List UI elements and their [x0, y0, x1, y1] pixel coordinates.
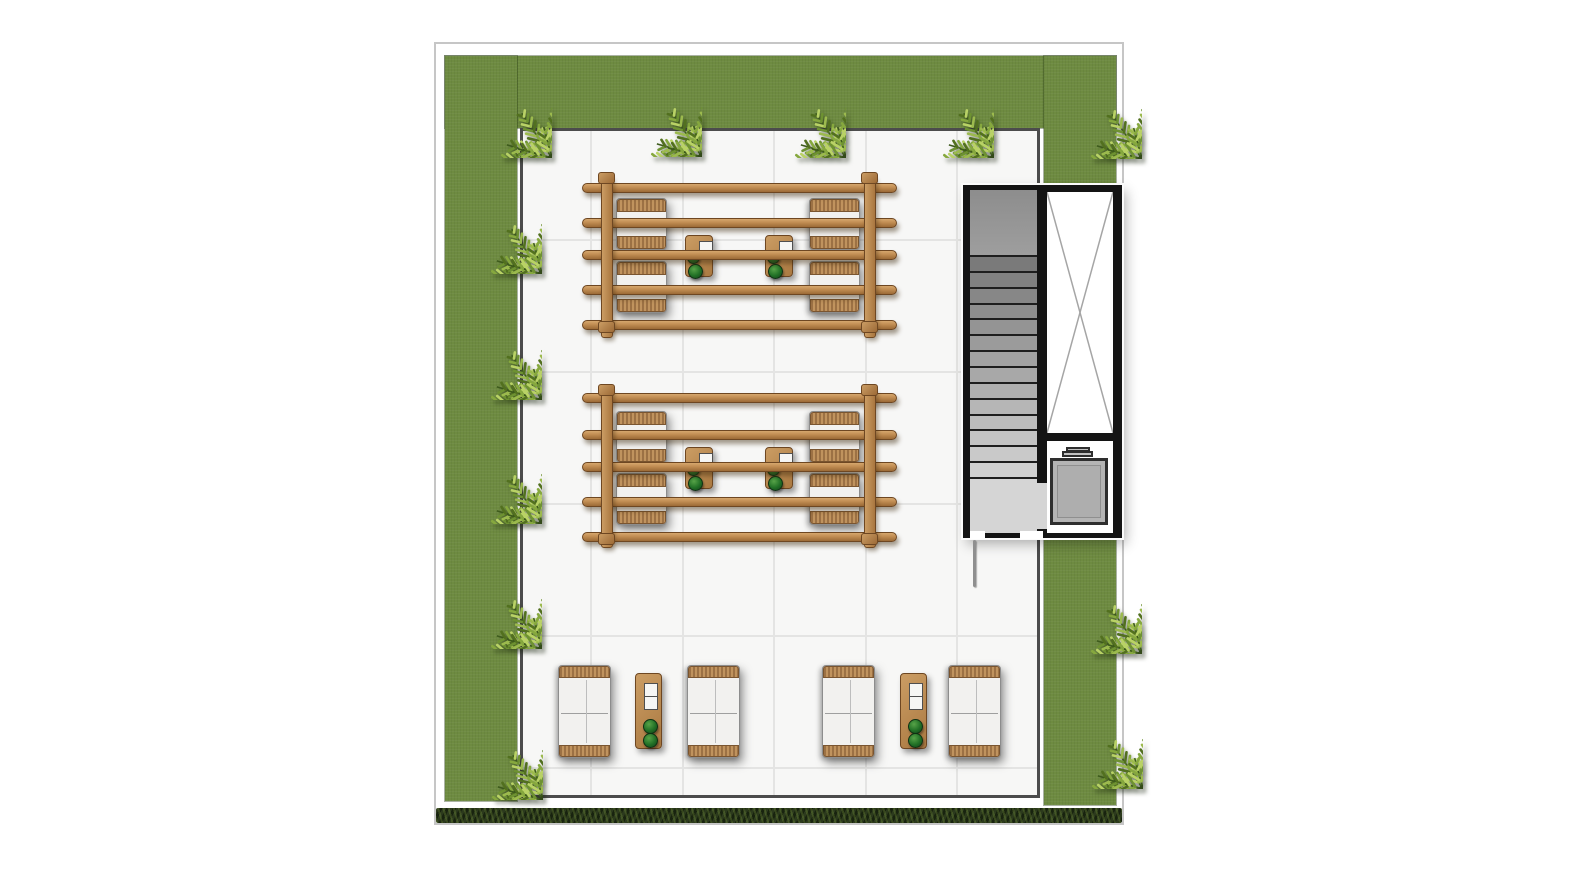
sofa-seam — [561, 713, 608, 714]
chair-wicker-end — [810, 262, 859, 275]
chair-wicker-end — [617, 474, 666, 487]
chair-wicker-end — [617, 199, 666, 212]
pergola-post-cap — [861, 172, 878, 184]
pergola-beam — [582, 285, 897, 295]
stair-tread — [970, 350, 1037, 366]
stair-tread — [970, 255, 1037, 271]
sofa-wicker-end — [949, 666, 1000, 678]
pergola-post-cap — [598, 384, 615, 396]
tank-lid — [1062, 451, 1093, 457]
stair-tread — [970, 382, 1037, 398]
pergola-post-cap — [861, 533, 878, 545]
pergola-beam — [582, 462, 897, 472]
chair-wicker-end — [617, 236, 666, 249]
sofa-seam — [850, 680, 851, 743]
sofa-seam — [586, 680, 587, 743]
elevator-x — [1047, 192, 1113, 433]
sofa-side-table — [635, 673, 662, 749]
sofa-wicker-end — [559, 666, 610, 678]
plant-pot — [643, 719, 658, 734]
water-tank-inner — [1057, 465, 1101, 518]
stair-tread — [970, 461, 1037, 477]
sofa — [558, 665, 611, 758]
sofa-seam — [715, 680, 716, 743]
stair-landing-top — [970, 190, 1037, 255]
stair-tread — [970, 334, 1037, 350]
tray — [909, 683, 923, 697]
stair-tread — [970, 366, 1037, 382]
chair-wicker-end — [810, 511, 859, 524]
door-leader-line — [973, 540, 976, 587]
stair-tread — [970, 398, 1037, 414]
tray — [909, 696, 923, 710]
grass-band-left — [445, 56, 517, 801]
sofa-wicker-end — [688, 666, 739, 678]
door-opening — [1020, 531, 1043, 539]
chair-wicker-end — [617, 449, 666, 462]
sofa — [687, 665, 740, 758]
chair-wicker-end — [810, 236, 859, 249]
sofa-seam — [976, 680, 977, 743]
sofa-wicker-end — [559, 745, 610, 757]
plant-pot — [688, 264, 703, 279]
plant-pot — [768, 476, 783, 491]
stair-tread — [970, 287, 1037, 303]
pergola-beam — [582, 393, 897, 403]
tile-grid-line — [523, 767, 1037, 769]
stair-tread — [970, 414, 1037, 430]
sofa — [948, 665, 1001, 758]
pergola-beam — [582, 183, 897, 193]
pergola-post — [864, 176, 876, 338]
sofa-wicker-end — [949, 745, 1000, 757]
pergola-post-cap — [861, 384, 878, 396]
pergola-beam — [582, 320, 897, 330]
pergola-post-cap — [598, 321, 615, 333]
sofa-seam — [690, 713, 737, 714]
sofa-side-table — [900, 673, 927, 749]
plant-pot — [908, 733, 923, 748]
chair-wicker-end — [617, 299, 666, 312]
sofa-wicker-end — [823, 745, 874, 757]
door-opening — [1037, 483, 1047, 529]
door-opening — [970, 531, 985, 539]
sofa-wicker-end — [688, 745, 739, 757]
hedge — [436, 808, 1122, 823]
pergola-beam — [582, 497, 897, 507]
stair-tread — [970, 445, 1037, 461]
chair-wicker-end — [617, 412, 666, 425]
stair-tread — [970, 318, 1037, 334]
pergola-beam — [582, 218, 897, 228]
chair-wicker-end — [810, 474, 859, 487]
tile-grid-line — [523, 371, 1037, 373]
pergola-post — [864, 388, 876, 548]
grass-band-top — [445, 56, 1116, 128]
sofa-seam — [951, 713, 998, 714]
pergola-beam — [582, 532, 897, 542]
floor-plan-canvas — [0, 0, 1570, 883]
sofa-wicker-end — [823, 666, 874, 678]
plant-pot — [908, 719, 923, 734]
pergola-beam — [582, 430, 897, 440]
stair-tread — [970, 303, 1037, 319]
chair-wicker-end — [810, 199, 859, 212]
tile-grid-line — [523, 635, 1037, 637]
stair-landing-bottom — [970, 477, 1037, 533]
pergola-post-cap — [598, 533, 615, 545]
plant-pot — [688, 476, 703, 491]
stair-tread — [970, 429, 1037, 445]
pergola-post — [601, 176, 613, 338]
plant-pot — [768, 264, 783, 279]
plant-pot — [643, 733, 658, 748]
stair-tread — [970, 271, 1037, 287]
chair-wicker-end — [810, 299, 859, 312]
water-tank — [1050, 458, 1108, 525]
chair-wicker-end — [617, 511, 666, 524]
pergola-post — [601, 388, 613, 548]
chair-wicker-end — [617, 262, 666, 275]
tray — [644, 683, 658, 697]
pergola-post-cap — [598, 172, 615, 184]
chair-wicker-end — [810, 412, 859, 425]
tray — [644, 696, 658, 710]
pergola-post-cap — [861, 321, 878, 333]
pergola-beam — [582, 250, 897, 260]
sofa-seam — [825, 713, 872, 714]
sofa — [822, 665, 875, 758]
chair-wicker-end — [810, 449, 859, 462]
